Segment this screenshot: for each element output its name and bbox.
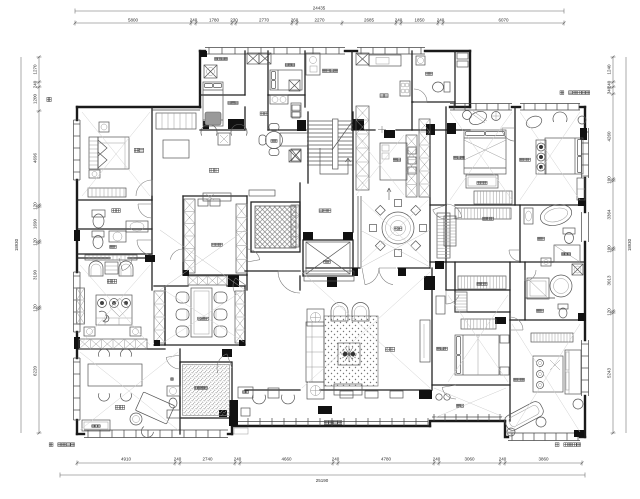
svg-text:2270: 2270: [314, 18, 325, 23]
svg-text:240: 240: [190, 18, 198, 23]
svg-text:1850: 1850: [414, 18, 425, 23]
svg-text:230: 230: [230, 18, 238, 23]
svg-text:100: 100: [607, 176, 612, 184]
svg-text:120: 120: [33, 304, 38, 312]
svg-text:100: 100: [607, 245, 612, 253]
svg-text:240: 240: [395, 18, 403, 23]
svg-text:240: 240: [33, 80, 38, 88]
svg-text:240: 240: [234, 457, 242, 462]
svg-text:240: 240: [499, 457, 507, 462]
svg-text:4260: 4260: [607, 131, 612, 142]
svg-text:240: 240: [437, 18, 445, 23]
svg-text:240: 240: [433, 457, 441, 462]
svg-text:24435: 24435: [313, 6, 326, 11]
svg-text:5243: 5243: [607, 367, 612, 378]
svg-text:4660: 4660: [281, 457, 292, 462]
svg-text:2740: 2740: [202, 457, 213, 462]
svg-text:120: 120: [33, 202, 38, 210]
svg-text:18930: 18930: [14, 238, 19, 251]
svg-text:18930: 18930: [627, 238, 632, 251]
svg-text:240: 240: [174, 457, 182, 462]
svg-text:3190: 3190: [33, 269, 38, 280]
svg-text:260: 260: [291, 18, 299, 23]
svg-text:3013: 3013: [607, 275, 612, 286]
svg-text:3860: 3860: [538, 457, 549, 462]
svg-text:1200: 1200: [33, 93, 38, 104]
svg-text:25190: 25190: [316, 478, 329, 483]
svg-text:4910: 4910: [121, 457, 132, 462]
svg-text:3060: 3060: [464, 457, 475, 462]
svg-text:5800: 5800: [128, 18, 139, 23]
svg-text:6070: 6070: [498, 18, 509, 23]
svg-text:1690: 1690: [33, 218, 38, 229]
svg-text:1780: 1780: [209, 18, 220, 23]
svg-text:120: 120: [607, 308, 612, 316]
svg-text:1270: 1270: [33, 64, 38, 75]
svg-text:4696: 4696: [33, 152, 38, 163]
svg-text:6220: 6220: [33, 365, 38, 376]
svg-text:2770: 2770: [259, 18, 270, 23]
svg-text:120: 120: [33, 238, 38, 246]
svg-text:240: 240: [332, 457, 340, 462]
svg-text:1240: 1240: [607, 64, 612, 75]
svg-text:340: 340: [607, 86, 612, 94]
svg-text:3364: 3364: [607, 209, 612, 220]
svg-text:2685: 2685: [364, 18, 375, 23]
svg-text:4780: 4780: [381, 457, 392, 462]
